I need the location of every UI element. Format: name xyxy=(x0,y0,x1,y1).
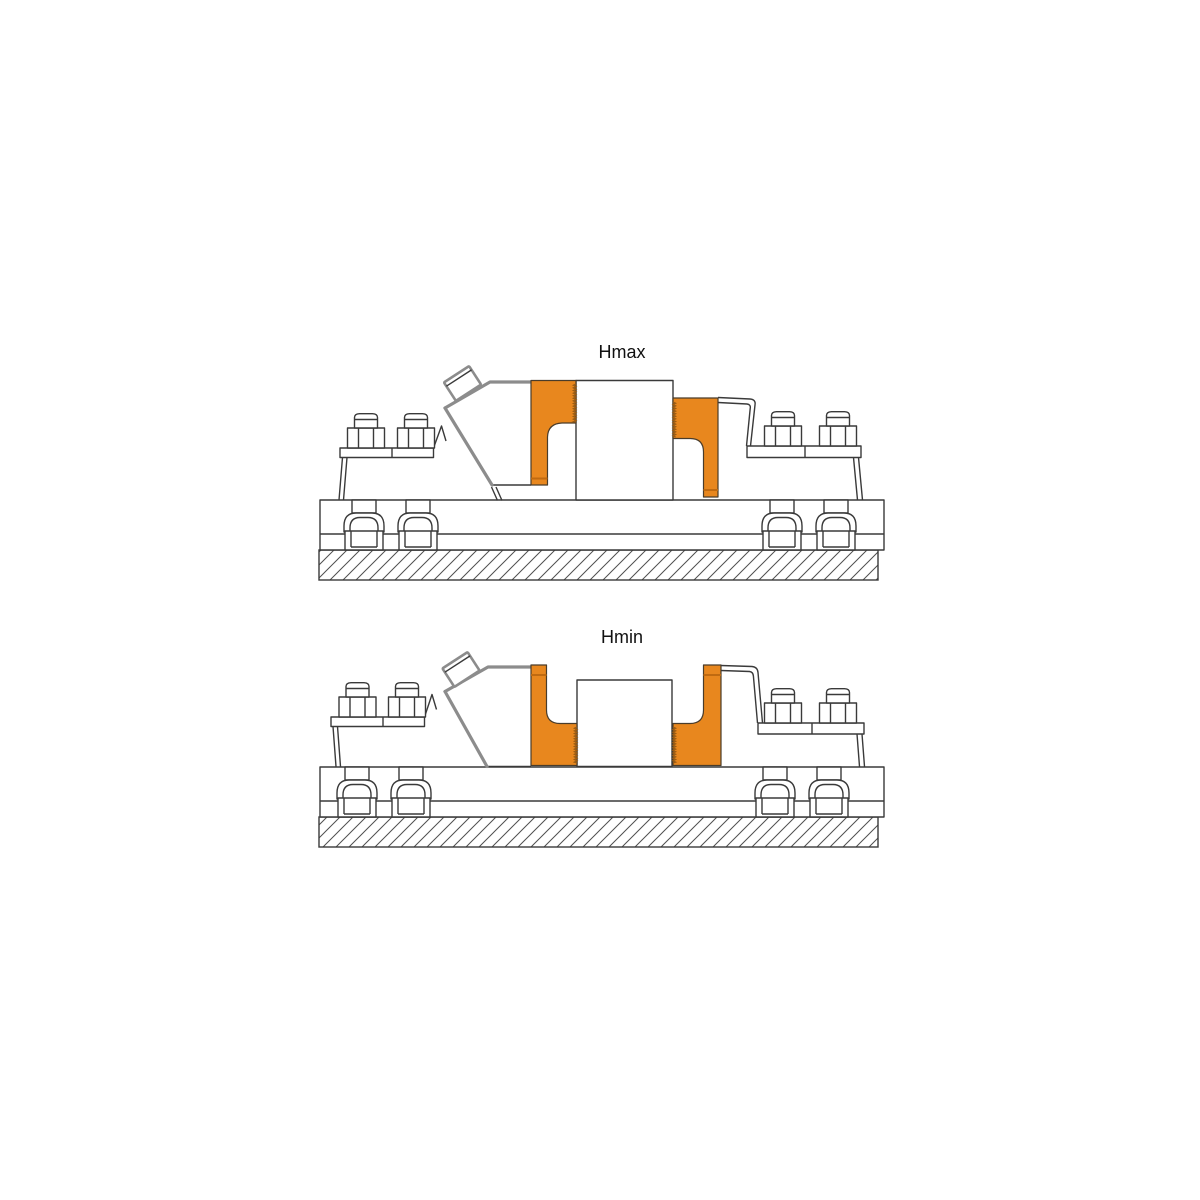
figure-hmin: Hmin xyxy=(319,627,884,847)
leveling-screw-left xyxy=(531,665,577,766)
leveling-screw-right xyxy=(673,665,721,766)
hex-nut-stack xyxy=(765,689,802,723)
leveling-screw-left xyxy=(531,381,576,486)
hex-nut-stack xyxy=(348,414,385,448)
diagram-canvas: Hmax xyxy=(0,0,1200,1200)
hex-nut-stack xyxy=(820,412,857,446)
hmax-label: Hmax xyxy=(598,342,645,362)
clamp-bracket-right xyxy=(721,666,865,767)
leveling-screw-right xyxy=(673,398,718,497)
figure-hmax: Hmax xyxy=(319,342,884,580)
hex-nut-stack xyxy=(389,683,426,717)
clamp-bracket-left xyxy=(339,414,446,500)
clamp-bracket-left xyxy=(331,683,437,767)
wedge-mount-height-diagram: Hmax xyxy=(0,0,1200,1200)
hex-nut-stack xyxy=(339,683,376,717)
ground-hatch xyxy=(319,817,878,847)
hex-nut-stack xyxy=(398,414,435,448)
hex-nut-stack xyxy=(765,412,802,446)
hmin-label: Hmin xyxy=(601,627,643,647)
machine-foot-block xyxy=(576,381,673,501)
machine-foot-block xyxy=(577,680,672,767)
hex-nut-stack xyxy=(820,689,857,723)
clamp-bracket-right xyxy=(718,398,863,501)
ground-hatch xyxy=(319,550,878,580)
